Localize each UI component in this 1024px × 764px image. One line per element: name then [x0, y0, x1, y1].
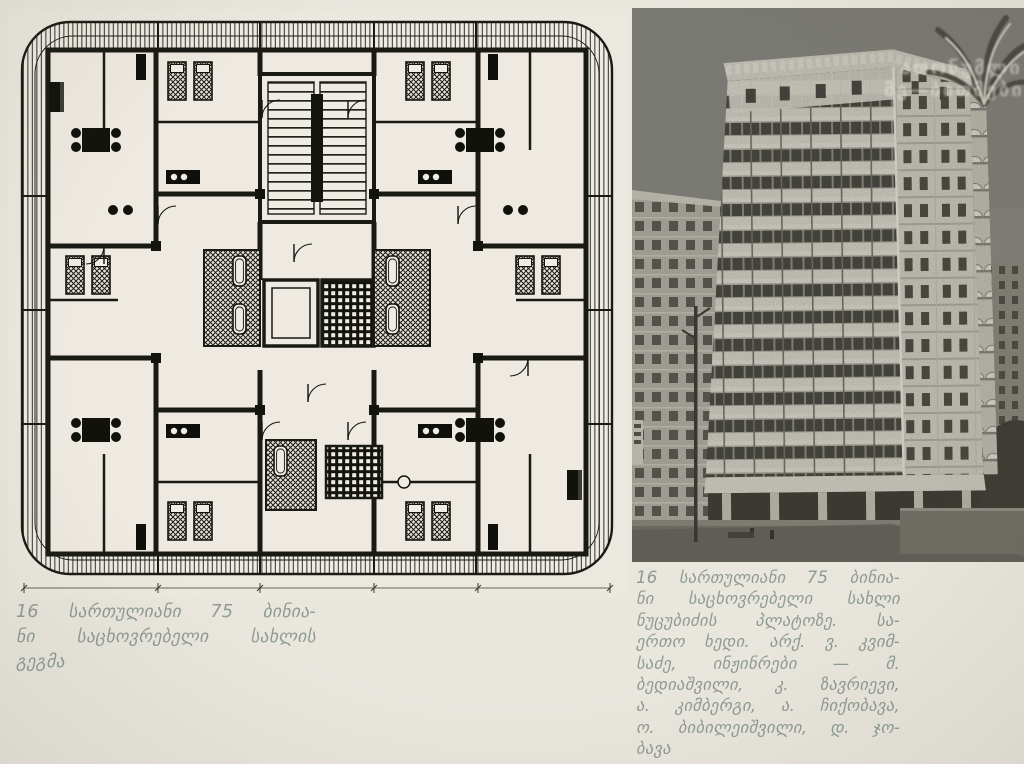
- caption-line: 16 სართულიანი 75 ბინია-: [636, 567, 900, 588]
- watermark-line2: მე—ბითმები: [884, 79, 1024, 101]
- scanned-page: ათონუმლი მე—ბითმები 16 სართულიანი 75 ბინ…: [0, 0, 1024, 764]
- building-photo: ათონუმლი მე—ბითმები: [632, 8, 1024, 562]
- caption-line: ნუცუბიძის პლატოზე. სა-: [636, 610, 900, 631]
- caption-line: ა. კიმბერგი, ა. ჩიქობავა,: [636, 695, 900, 716]
- caption-line: საძე, ინჟინრები — მ.: [636, 653, 900, 674]
- caption-line: ერთო ხედი. არქ. ვ. კვიმ-: [636, 631, 900, 652]
- floor-plan-drawing: [8, 10, 626, 598]
- figure-caption-photo: 16 სართულიანი 75 ბინია- ნი საცხოვრებელი …: [636, 567, 900, 760]
- figure-caption-plan: 16 სართულიანი 75 ბინია- ნი საცხოვრებელი …: [16, 600, 316, 675]
- caption-line: ნი საცხოვრებელი სახლის: [16, 625, 316, 650]
- caption-line: ნი საცხოვრებელი სახლი: [636, 588, 900, 609]
- stair-core: [260, 74, 374, 222]
- watermark-line1: ათონუმლი: [900, 57, 1022, 79]
- caption-line: ო. ბიბილეიშვილი, დ. ჯო-: [636, 717, 900, 738]
- floor-plan-figure: [8, 10, 626, 598]
- building-photo-figure: ათონუმლი მე—ბითმები: [632, 8, 1024, 562]
- caption-line: 16 სართულიანი 75 ბინია-: [16, 600, 316, 625]
- caption-line: ბედიაშვილი, კ. ზავრიევი,: [636, 674, 900, 695]
- caption-line: ბავა: [636, 738, 900, 759]
- elevator-shafts: [264, 280, 374, 346]
- caption-line: გეგმა: [16, 650, 316, 675]
